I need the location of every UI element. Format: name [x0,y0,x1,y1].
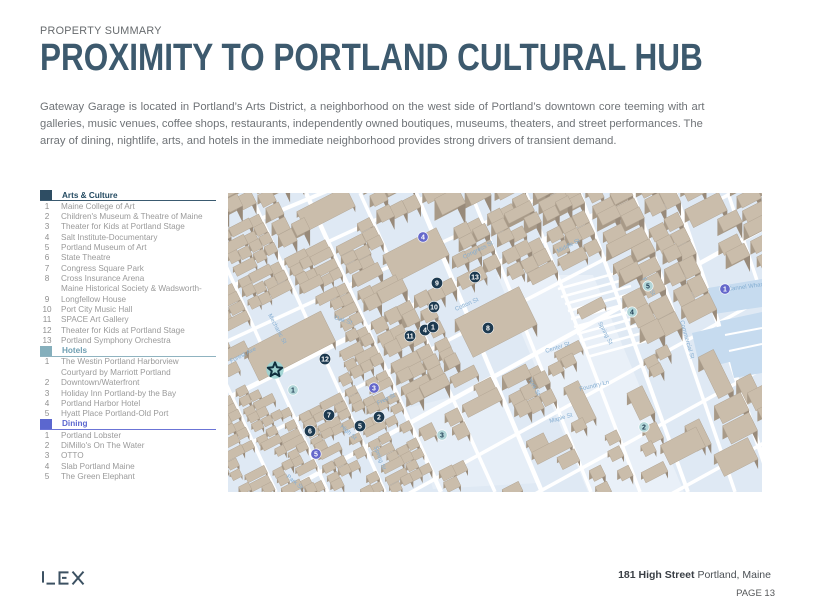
svg-text:11: 11 [406,333,414,340]
svg-text:4: 4 [421,234,425,241]
svg-text:12: 12 [321,356,329,363]
svg-text:5: 5 [314,451,318,458]
svg-text:10: 10 [430,304,438,311]
svg-text:2: 2 [642,424,646,431]
svg-text:1: 1 [291,387,295,394]
svg-text:7: 7 [327,412,331,419]
svg-text:1: 1 [723,286,727,293]
svg-text:3: 3 [372,385,376,392]
svg-text:5: 5 [358,423,362,430]
svg-text:4: 4 [630,309,634,316]
svg-text:6: 6 [308,428,312,435]
svg-text:8: 8 [486,325,490,332]
svg-text:13: 13 [471,274,479,281]
svg-text:4: 4 [423,327,427,334]
svg-text:2: 2 [377,414,381,421]
svg-text:1: 1 [431,324,435,331]
svg-text:3: 3 [440,432,444,439]
svg-text:5: 5 [646,283,650,290]
svg-text:9: 9 [435,280,439,287]
